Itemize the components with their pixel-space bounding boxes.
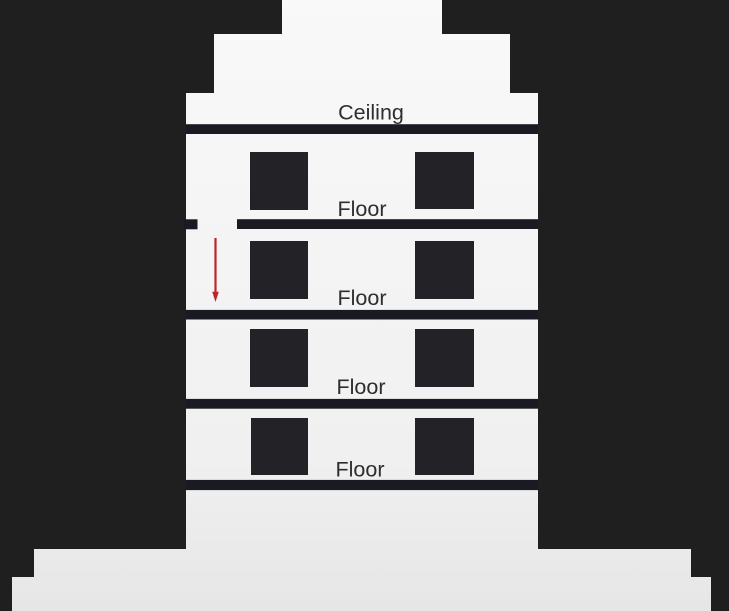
svg-text:Floor: Floor <box>337 375 386 399</box>
svg-text:Floor: Floor <box>338 197 387 221</box>
svg-text:Ceiling: Ceiling <box>338 101 404 125</box>
svg-text:Floor: Floor <box>338 286 387 310</box>
svg-text:Floor: Floor <box>336 458 385 482</box>
